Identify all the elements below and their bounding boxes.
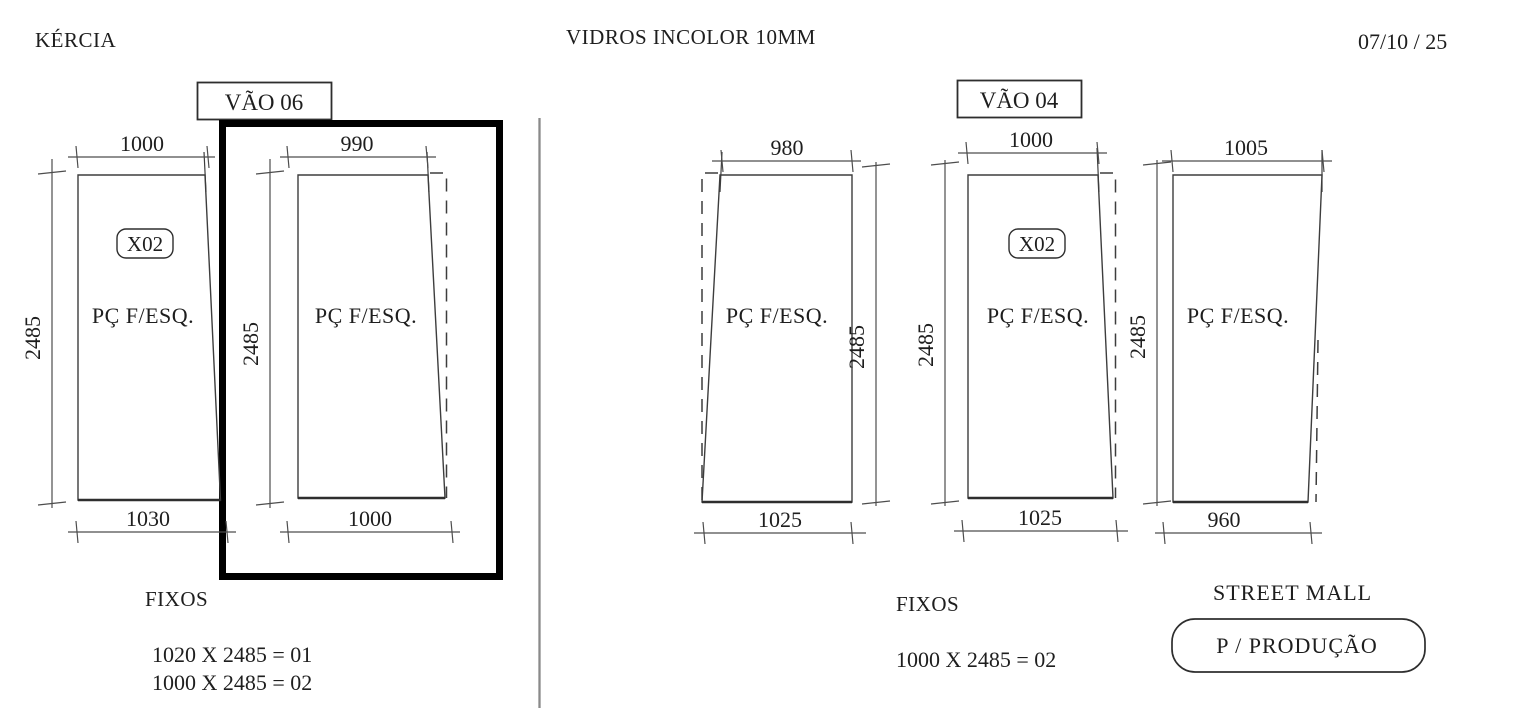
dim-top-width: 990: [341, 131, 374, 156]
opening-dashed-line: [430, 173, 447, 498]
location-label: STREET MALL: [1213, 580, 1372, 605]
dim-height: 2485: [20, 316, 45, 360]
dim-top-width: 1000: [1009, 127, 1053, 152]
panel-piece-label: PÇ F/ESQ.: [315, 303, 417, 328]
dim-bottom-width: 960: [1208, 507, 1241, 532]
panel-piece-label: PÇ F/ESQ.: [1187, 303, 1289, 328]
fixos-title: FIXOS: [145, 587, 208, 611]
dim-bottom-width: 1000: [348, 506, 392, 531]
drawing-title: VIDROS INCOLOR 10MM: [566, 25, 816, 49]
fixos-line: 1000 X 2485 = 02: [896, 647, 1056, 672]
drawing-canvas: KÉRCIA VIDROS INCOLOR 10MM 07/10 / 25 VÃ…: [0, 0, 1536, 724]
glass-outline: [78, 175, 221, 500]
opening-dashed-line: [1100, 173, 1116, 498]
vao-06-label: VÃO 06: [225, 90, 304, 115]
dim-height: 2485: [844, 325, 869, 369]
dim-height: 2485: [1125, 315, 1150, 359]
production-stamp-block: STREET MALL P / PRODUÇÃO: [1172, 580, 1425, 672]
panel-vao04-3: 1005 2485 960 PÇ F/ESQ.: [1125, 135, 1332, 544]
vao-04-section: VÃO 04 980 2485 1025 PÇ F/ESQ.: [694, 81, 1425, 673]
dim-height: 2485: [238, 322, 263, 366]
x02-badge-label: X02: [127, 232, 163, 256]
vao-04-label: VÃO 04: [980, 88, 1059, 113]
glass-outline: [298, 175, 445, 498]
fixos-line: 1000 X 2485 = 02: [152, 670, 312, 695]
fixos-block-right: FIXOS 1000 X 2485 = 02: [896, 592, 1056, 672]
client-name: KÉRCIA: [35, 28, 117, 52]
x02-badge-label: X02: [1019, 232, 1055, 256]
dim-bottom-width: 1030: [126, 506, 170, 531]
production-stamp-label: P / PRODUÇÃO: [1216, 633, 1378, 658]
panel-vao04-1: 980 2485 1025 PÇ F/ESQ.: [694, 135, 890, 544]
glass-outline: [968, 175, 1113, 498]
dim-height: 2485: [913, 323, 938, 367]
vao-06-section: VÃO 06 1000 2485 1030 X02 PÇ F/ESQ.: [20, 83, 500, 696]
fixos-title: FIXOS: [896, 592, 959, 616]
glass-production-drawing: KÉRCIA VIDROS INCOLOR 10MM 07/10 / 25 VÃ…: [0, 0, 1536, 724]
panel-piece-label: PÇ F/ESQ.: [987, 303, 1089, 328]
opening-dashed-line: [1316, 340, 1318, 502]
fixos-block-left: FIXOS 1020 X 2485 = 01 1000 X 2485 = 02: [145, 587, 312, 695]
dim-top-width: 980: [771, 135, 804, 160]
panel-piece-label: PÇ F/ESQ.: [726, 303, 828, 328]
panel-vao04-2: 1000 2485 1025 X02 PÇ F/ESQ.: [913, 127, 1128, 542]
drawing-date: 07/10 / 25: [1358, 29, 1447, 54]
dim-bottom-width: 1025: [1018, 505, 1062, 530]
glass-outline: [1173, 175, 1322, 502]
dim-bottom-width: 1025: [758, 507, 802, 532]
glass-outline: [702, 175, 852, 502]
dim-top-width: 1000: [120, 131, 164, 156]
dim-top-width: 1005: [1224, 135, 1268, 160]
panel-vao06-1: 1000 2485 1030 X02 PÇ F/ESQ.: [20, 131, 236, 543]
panel-piece-label: PÇ F/ESQ.: [92, 303, 194, 328]
fixos-line: 1020 X 2485 = 01: [152, 642, 312, 667]
panel-vao06-2: 990 2485 1000 PÇ F/ESQ.: [238, 131, 460, 543]
